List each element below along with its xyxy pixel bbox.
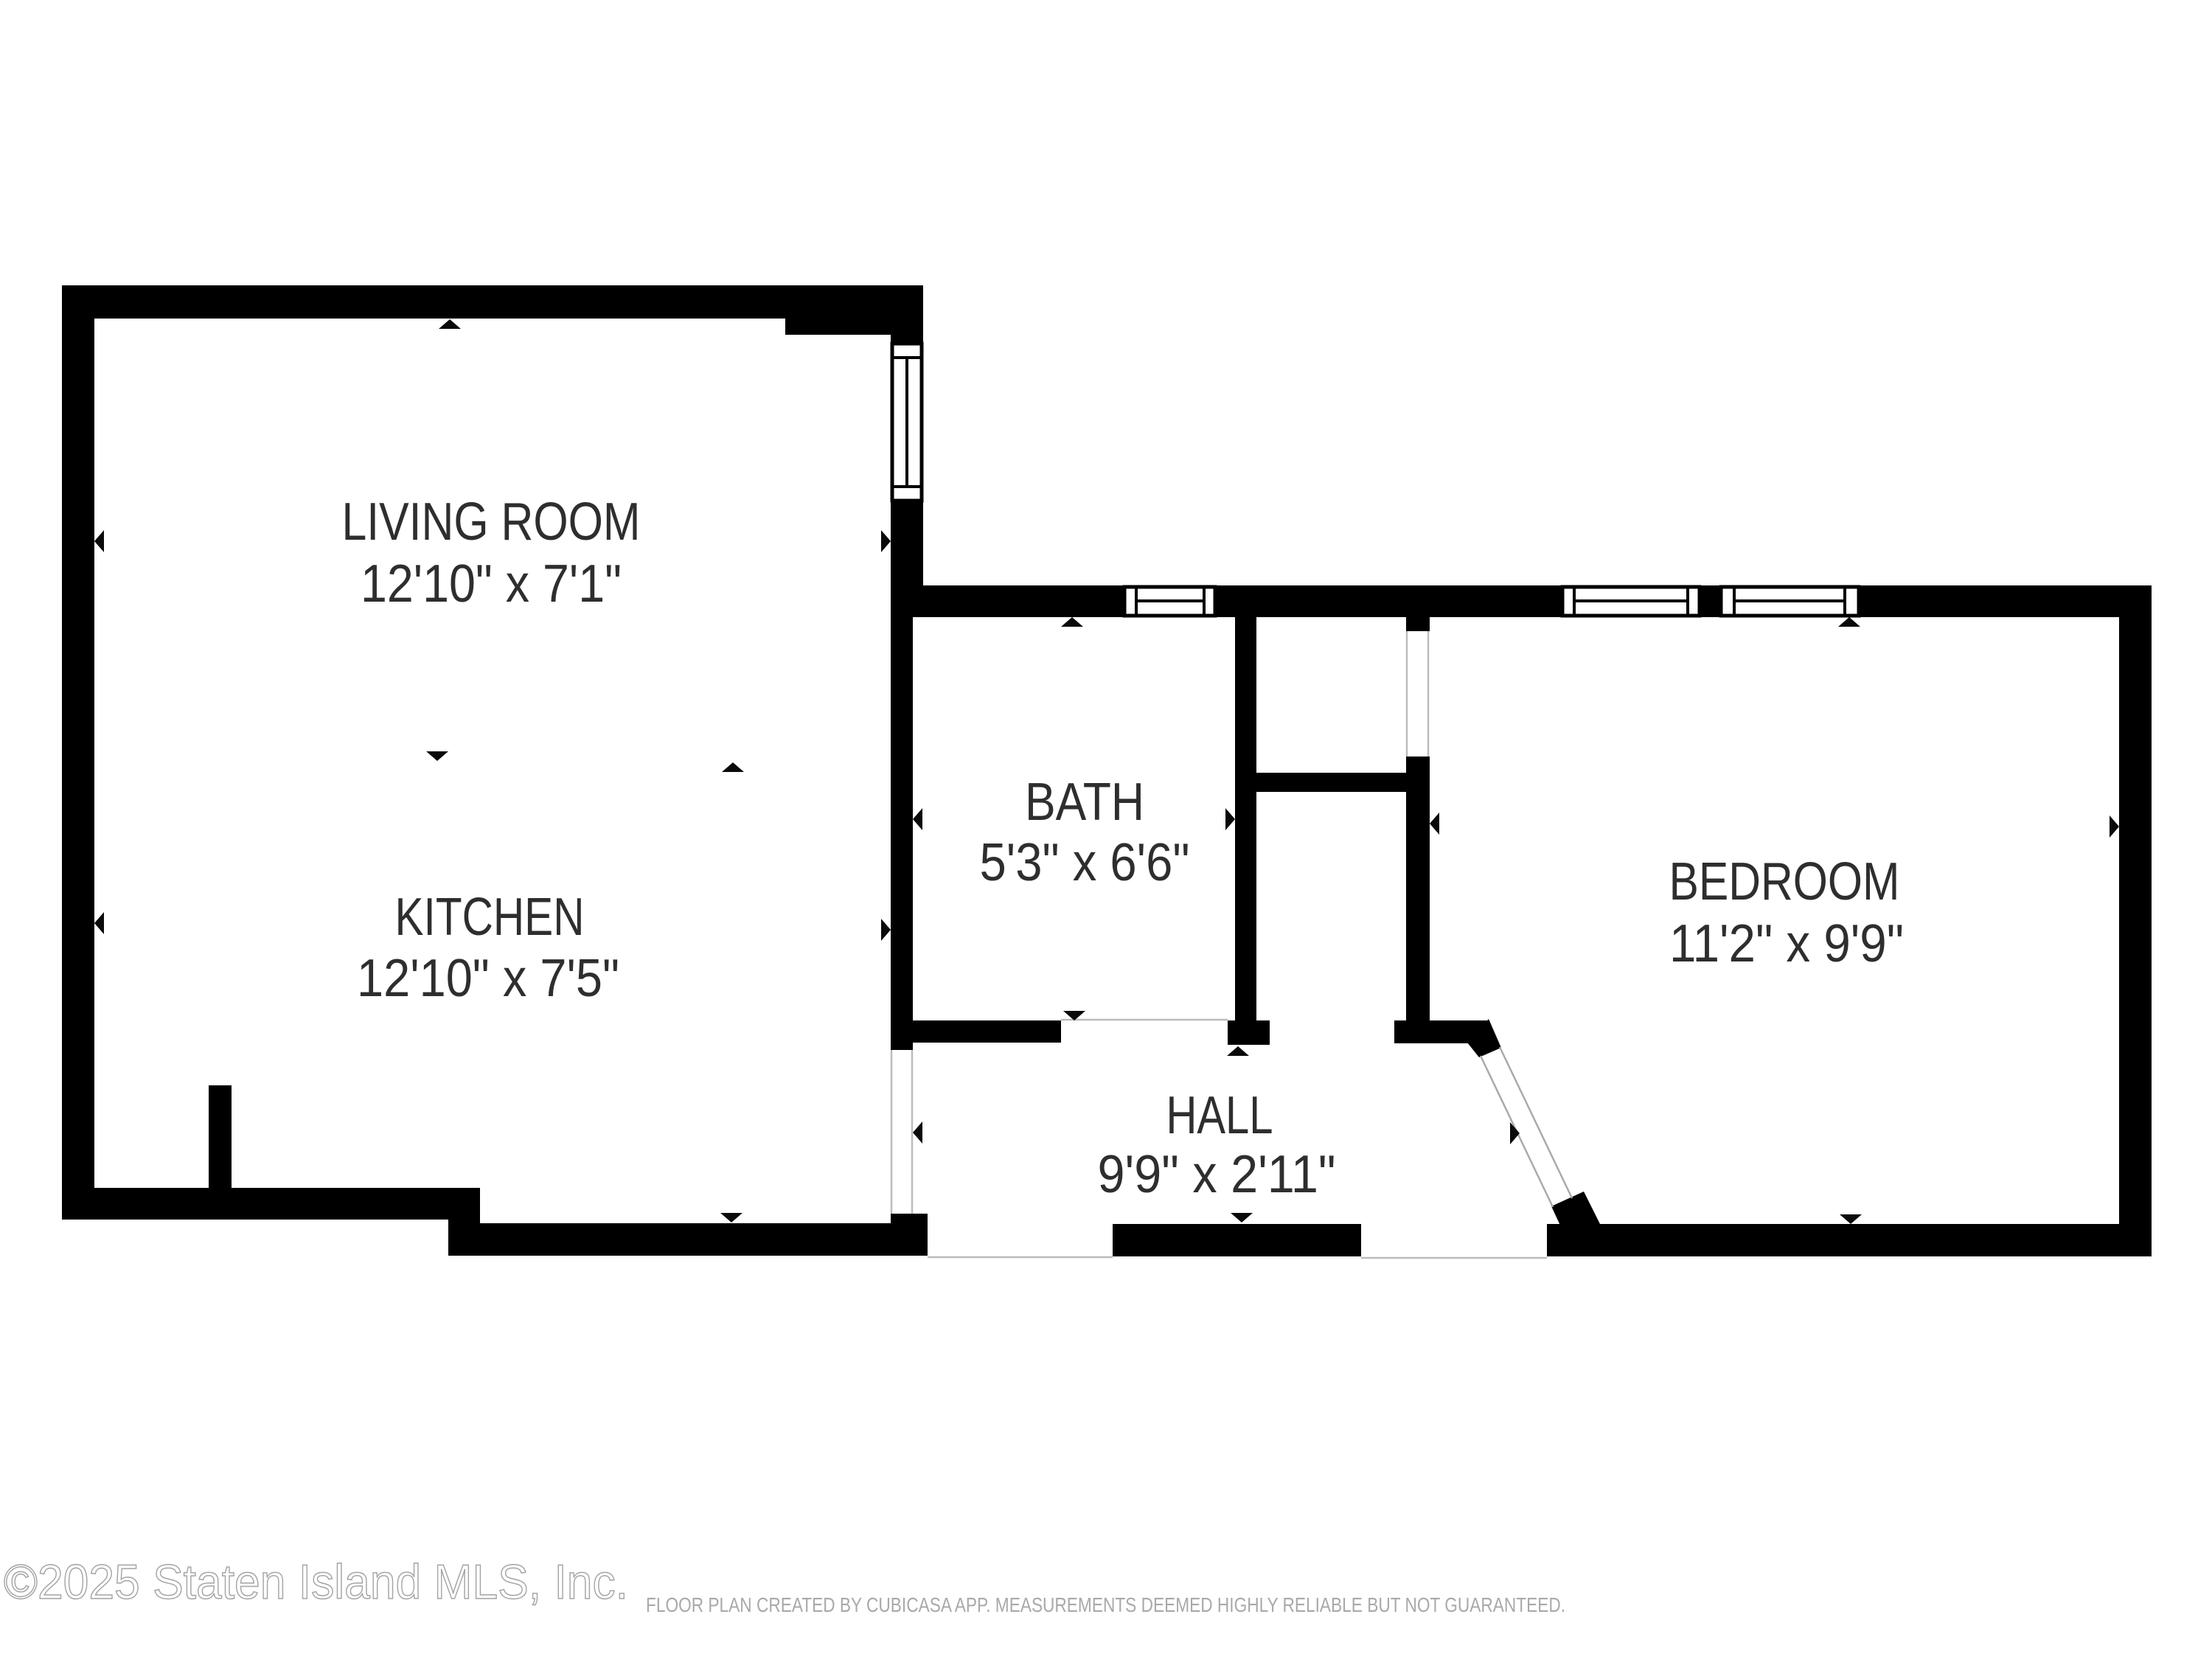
svg-text:KITCHEN: KITCHEN (395, 888, 585, 947)
svg-text:BATH: BATH (1025, 773, 1144, 832)
svg-text:©2025 Staten Island MLS, Inc.: ©2025 Staten Island MLS, Inc. (4, 1554, 628, 1609)
svg-text:12'10" x 7'5": 12'10" x 7'5" (357, 949, 619, 1008)
svg-text:5'3" x 6'6": 5'3" x 6'6" (980, 833, 1190, 892)
svg-text:LIVING ROOM: LIVING ROOM (342, 493, 641, 552)
svg-text:12'10" x 7'1": 12'10" x 7'1" (361, 554, 622, 613)
svg-text:11'2" x 9'9": 11'2" x 9'9" (1669, 914, 1904, 973)
svg-text:HALL: HALL (1166, 1086, 1273, 1145)
svg-text:9'9" x 2'11": 9'9" x 2'11" (1098, 1145, 1336, 1204)
svg-text:FLOOR PLAN CREATED BY CUBICASA: FLOOR PLAN CREATED BY CUBICASA APP. MEAS… (646, 1593, 1565, 1616)
svg-text:BEDROOM: BEDROOM (1669, 852, 1900, 911)
